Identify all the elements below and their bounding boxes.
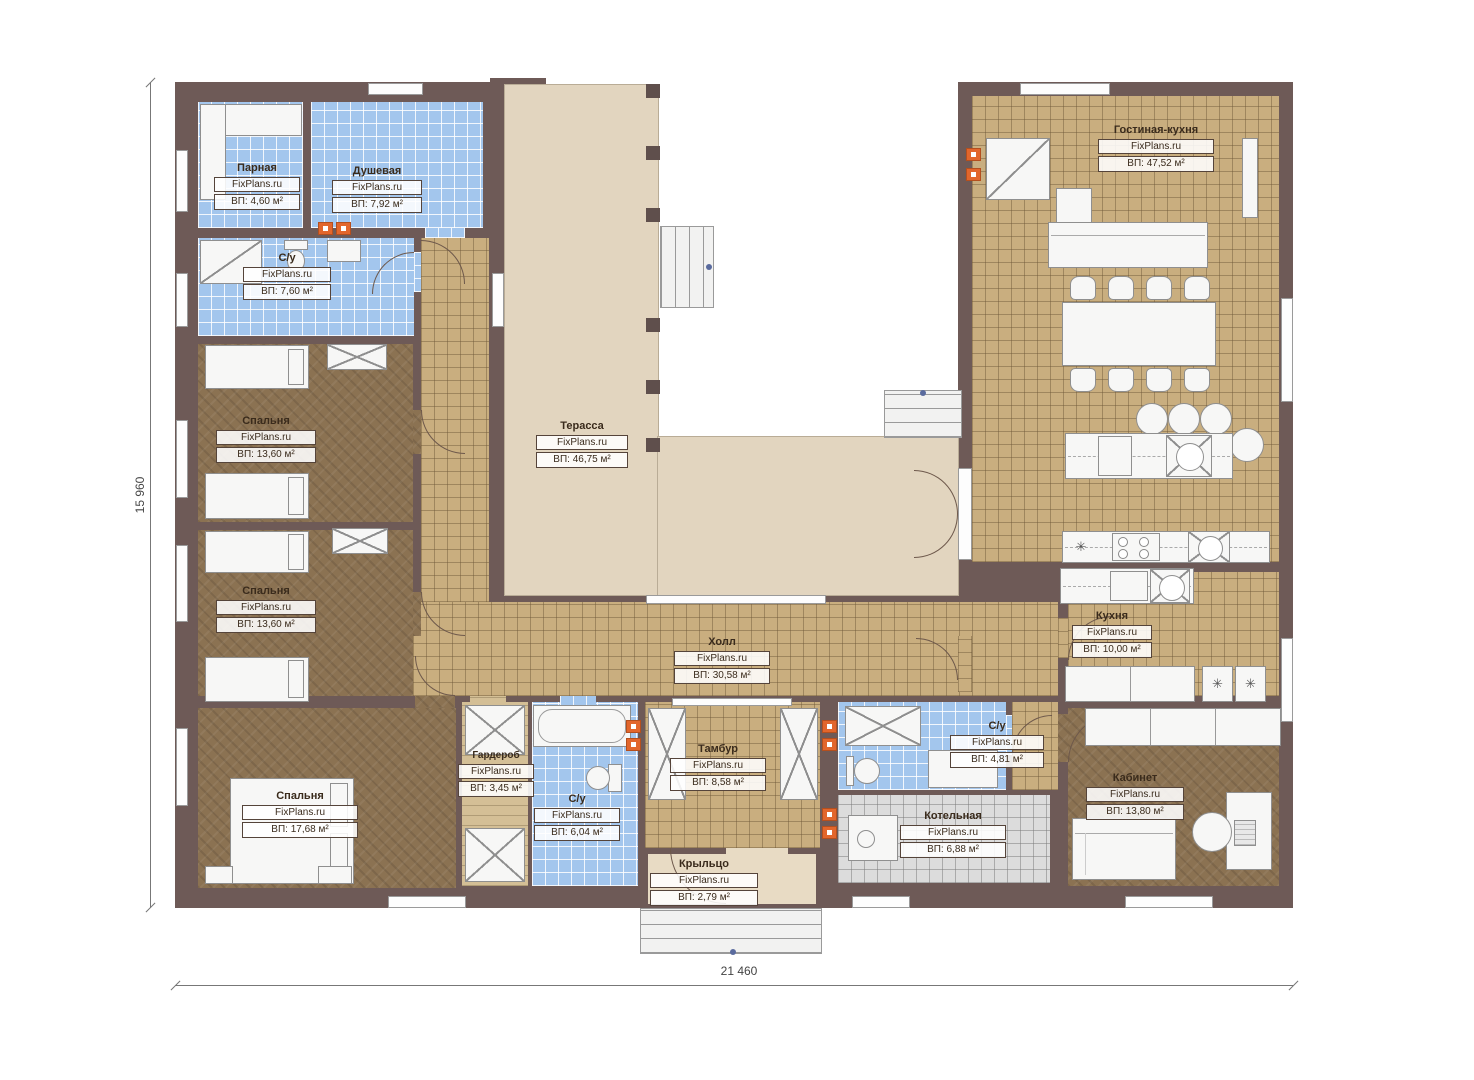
radiator-marker	[822, 720, 837, 733]
room-area: ВП: 7,60 м²	[243, 284, 331, 300]
office-sofa	[1072, 818, 1176, 880]
office-chair	[1192, 812, 1232, 852]
terrace-column	[646, 208, 660, 222]
burner	[1139, 537, 1149, 547]
room-name: Спальня	[216, 415, 316, 428]
dimension-line-bottom	[175, 985, 1293, 986]
porch-steps	[640, 908, 822, 954]
room-area: ВП: 4,81 м²	[950, 752, 1044, 768]
level-dot	[730, 949, 736, 955]
radiator-marker	[336, 222, 351, 235]
room-area: ВП: 13,60 м²	[216, 617, 316, 633]
room-name: Спальня	[216, 585, 316, 598]
room-label-boiler: Котельная FixPlans.ru ВП: 6,88 м²	[900, 810, 1006, 858]
room-area: ВП: 7,92 м²	[332, 197, 422, 213]
sofa-seat-line	[1085, 833, 1086, 875]
room-name: Спальня	[242, 790, 358, 803]
room-area: ВП: 17,68 м²	[242, 822, 358, 838]
room-name: С/у	[950, 720, 1044, 733]
bathroom1-door-gap	[414, 252, 421, 292]
nightstand	[205, 866, 233, 884]
room-label-bedroom2: Спальня FixPlans.ru ВП: 13,60 м²	[216, 585, 316, 633]
window-top-right-wing	[1020, 83, 1110, 95]
window-terrace-wall-left	[492, 273, 504, 327]
dimension-line-left	[150, 82, 151, 908]
toilet-bowl	[854, 758, 880, 784]
terrace-double-door-gap	[958, 468, 972, 560]
shower-door-gap	[425, 228, 465, 238]
room-name: Гостиная-кухня	[1098, 124, 1214, 137]
bar-stool	[1136, 403, 1168, 435]
window-top-left-wing	[368, 83, 423, 95]
window-left-2	[176, 273, 188, 327]
radiator-marker	[822, 738, 837, 751]
boiler-dial	[857, 830, 875, 848]
radiator-marker	[626, 738, 641, 751]
terrace-column	[646, 438, 660, 452]
dining-chair	[1070, 276, 1096, 300]
toilet-tank	[284, 240, 308, 250]
bed-pillow	[288, 534, 304, 570]
watermark: FixPlans.ru	[950, 735, 1044, 751]
watermark: FixPlans.ru	[1098, 139, 1214, 155]
toilet-bowl	[586, 766, 610, 790]
room-name: Гардероб	[458, 750, 534, 762]
watermark: FixPlans.ru	[1072, 625, 1152, 641]
room-area: ВП: 13,60 м²	[216, 447, 316, 463]
watermark: FixPlans.ru	[458, 764, 534, 780]
watermark: FixPlans.ru	[242, 805, 358, 821]
room-area: ВП: 8,58 м²	[670, 775, 766, 791]
room-label-porch: Крыльцо FixPlans.ru ВП: 2,79 м²	[650, 858, 758, 906]
terrace-floor-ext	[658, 437, 958, 595]
level-dot	[706, 264, 712, 270]
fireplace	[986, 138, 1050, 200]
bedroom3-door-gap	[415, 696, 455, 708]
room-name: Тамбур	[670, 743, 766, 756]
bathtub-inner	[538, 709, 626, 743]
window-hall-terrace	[646, 595, 826, 604]
fireplace-marker	[966, 148, 981, 161]
room-label-kitchen: Кухня FixPlans.ru ВП: 10,00 м²	[1072, 610, 1152, 658]
island-sink	[1166, 435, 1212, 477]
terrace-column	[646, 380, 660, 394]
dimension-left-value: 15 960	[133, 465, 147, 525]
watermark: FixPlans.ru	[243, 267, 331, 283]
radiator-marker	[626, 720, 641, 733]
floor-plan-canvas: ✳ ✳ ✳ Парная FixPlans.ru ВП: 4,60 м² Душ…	[0, 0, 1474, 1080]
room-name: Терасса	[536, 420, 628, 433]
appliance-icon: ✳	[1202, 666, 1233, 702]
room-label-sauna: Парная FixPlans.ru ВП: 4,60 м²	[214, 162, 300, 210]
boiler-unit	[848, 815, 898, 861]
room-label-shower: Душевая FixPlans.ru ВП: 7,92 м²	[332, 165, 422, 213]
watermark: FixPlans.ru	[1086, 787, 1184, 803]
watermark: FixPlans.ru	[674, 651, 770, 667]
room-area: ВП: 6,88 м²	[900, 842, 1006, 858]
radiator-marker	[822, 808, 837, 821]
dimension-bottom-value: 21 460	[704, 964, 774, 978]
kitchen-sink	[1110, 571, 1148, 601]
watermark: FixPlans.ru	[214, 177, 300, 193]
window-left-1	[176, 150, 188, 212]
room-name: С/у	[534, 793, 620, 806]
window-right-1	[1281, 298, 1293, 402]
room-area: ВП: 46,75 м²	[536, 452, 628, 468]
nightstand	[318, 866, 352, 884]
room-label-bedroom1: Спальня FixPlans.ru ВП: 13,60 м²	[216, 415, 316, 463]
room-name: Кабинет	[1086, 772, 1184, 785]
washbasin	[327, 240, 361, 262]
round-sink	[1188, 531, 1230, 563]
bed-pillow	[288, 349, 304, 385]
room-label-terrace: Терасса FixPlans.ru ВП: 46,75 м²	[536, 420, 628, 468]
bar-stool	[1168, 403, 1200, 435]
room-label-wardrobe: Гардероб FixPlans.ru ВП: 3,45 м²	[458, 750, 534, 797]
room-name: Парная	[214, 162, 300, 175]
fireplace-marker	[966, 168, 981, 181]
room-label-hall: Холл FixPlans.ru ВП: 30,58 м²	[674, 636, 770, 684]
round-cooker	[1150, 569, 1190, 603]
toilet-tank	[608, 764, 622, 792]
window-left-3	[176, 420, 188, 498]
room-label-bedroom3: Спальня FixPlans.ru ВП: 17,68 м²	[242, 790, 358, 838]
toilet-tank	[846, 756, 854, 786]
bedroom1-door-gap	[413, 410, 421, 454]
terrace-column	[646, 146, 660, 160]
window-vestibule-top	[672, 698, 792, 706]
watermark: FixPlans.ru	[534, 808, 620, 824]
terrace-steps-right	[884, 390, 962, 438]
living-door-gap	[958, 636, 972, 692]
window-boiler-door	[852, 896, 910, 908]
window-bottom-1	[388, 896, 466, 908]
wardrobe-box	[780, 708, 818, 800]
room-area: ВП: 13,80 м²	[1086, 804, 1184, 820]
kitchen-door-gap	[1058, 618, 1068, 658]
wardrobe-box	[465, 828, 525, 882]
wardrobe-box	[465, 705, 525, 755]
dining-chair	[1146, 368, 1172, 392]
dining-chair	[1108, 276, 1134, 300]
terrace-column	[646, 84, 660, 98]
bathtub	[533, 705, 631, 747]
sofa-back-line	[1075, 833, 1173, 834]
window-left-4	[176, 545, 188, 622]
washing-machine	[845, 706, 921, 746]
laptop	[1234, 820, 1256, 846]
room-area: ВП: 47,52 м²	[1098, 156, 1214, 172]
watermark: FixPlans.ru	[536, 435, 628, 451]
window-right-2	[1281, 638, 1293, 722]
watermark: FixPlans.ru	[670, 758, 766, 774]
sink-bowl	[1198, 536, 1223, 561]
room-name: Котельная	[900, 810, 1006, 823]
level-dot	[920, 390, 926, 396]
room-area: ВП: 4,60 м²	[214, 194, 300, 210]
room-label-bathroom1: С/у FixPlans.ru ВП: 7,60 м²	[243, 252, 331, 300]
room-name: Кухня	[1072, 610, 1152, 623]
room-name: Душевая	[332, 165, 422, 178]
sofa-back-line	[1051, 235, 1205, 236]
burner	[1118, 549, 1128, 559]
sink-bowl	[1176, 443, 1204, 471]
bar-stool	[1200, 403, 1232, 435]
island-cabinet	[1098, 436, 1132, 476]
appliance-icon: ✳	[1066, 534, 1096, 560]
watermark: FixPlans.ru	[900, 825, 1006, 841]
room-area: ВП: 3,45 м²	[458, 781, 534, 797]
entrance-door-gap	[726, 848, 788, 856]
room-label-bathroom2: С/у FixPlans.ru ВП: 6,04 м²	[534, 793, 620, 841]
burner	[1118, 537, 1128, 547]
dining-chair	[1108, 368, 1134, 392]
tv-panel	[1242, 138, 1258, 218]
office-wardrobe	[1085, 708, 1281, 746]
bedroom2-door-gap	[413, 592, 421, 636]
appliance-icon: ✳	[1235, 666, 1266, 702]
terrace-column	[646, 318, 660, 332]
dining-chair	[1184, 368, 1210, 392]
wardrobe-box	[327, 344, 387, 370]
bed-pillow	[288, 477, 304, 515]
window-bottom-2	[1125, 896, 1213, 908]
sofa	[1048, 222, 1208, 268]
room-label-vestibule: Тамбур FixPlans.ru ВП: 8,58 м²	[670, 743, 766, 791]
radiator-marker	[318, 222, 333, 235]
room-name: Холл	[674, 636, 770, 649]
radiator-marker	[822, 826, 837, 839]
watermark: FixPlans.ru	[332, 180, 422, 196]
room-area: ВП: 10,00 м²	[1072, 642, 1152, 658]
room-name: С/у	[243, 252, 331, 265]
watermark: FixPlans.ru	[216, 430, 316, 446]
bar-stool	[1230, 428, 1264, 462]
office-door-gap	[1058, 714, 1068, 762]
burner	[1139, 549, 1149, 559]
dining-chair	[1184, 276, 1210, 300]
room-name: Крыльцо	[650, 858, 758, 871]
window-left-5	[176, 728, 188, 806]
dining-chair	[1070, 368, 1096, 392]
wardrobe-box	[332, 528, 388, 554]
kitchen-cabinets	[1065, 666, 1195, 702]
room-area: ВП: 6,04 м²	[534, 825, 620, 841]
bed-pillow	[288, 660, 304, 698]
room-area: ВП: 30,58 м²	[674, 668, 770, 684]
room-label-living-kitchen: Гостиная-кухня FixPlans.ru ВП: 47,52 м²	[1098, 124, 1214, 172]
watermark: FixPlans.ru	[650, 873, 758, 889]
watermark: FixPlans.ru	[216, 600, 316, 616]
terrace-floor	[505, 85, 658, 595]
cooktop	[1112, 533, 1160, 561]
cooker-ring	[1159, 575, 1185, 601]
room-label-office: Кабинет FixPlans.ru ВП: 13,80 м²	[1086, 772, 1184, 820]
dining-chair	[1146, 276, 1172, 300]
room-label-bathroom3: С/у FixPlans.ru ВП: 4,81 м²	[950, 720, 1044, 768]
room-area: ВП: 2,79 м²	[650, 890, 758, 906]
dining-table	[1062, 302, 1216, 366]
